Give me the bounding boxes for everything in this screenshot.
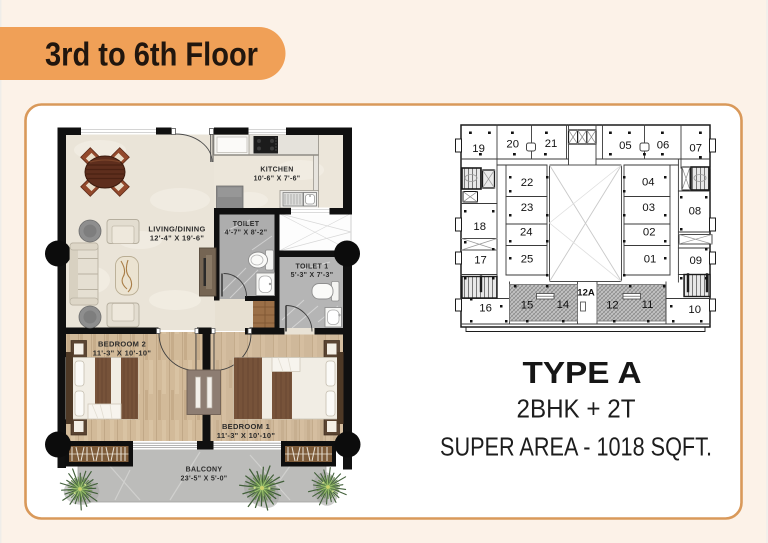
svg-text:2BHK + 2T: 2BHK + 2T [517,394,636,424]
svg-text:06: 06 [657,140,670,152]
svg-text:5'-3" X 7'-3": 5'-3" X 7'-3" [291,272,334,279]
svg-text:23'-5" X 5'-0": 23'-5" X 5'-0" [181,476,228,483]
svg-text:TOILET: TOILET [233,221,260,228]
svg-text:09: 09 [690,255,703,267]
svg-text:25: 25 [521,254,534,266]
svg-text:10: 10 [688,304,701,316]
svg-text:12A: 12A [577,288,595,299]
svg-text:20: 20 [506,139,519,151]
svg-text:4'-7" X 8'-2": 4'-7" X 8'-2" [225,230,268,237]
svg-text:TYPE A: TYPE A [523,355,642,390]
svg-text:10'-6" X 7'-6": 10'-6" X 7'-6" [254,176,301,183]
svg-text:11: 11 [642,299,654,311]
svg-text:BEDROOM 1: BEDROOM 1 [222,422,270,431]
svg-text:22: 22 [521,177,534,189]
svg-text:TOILET 1: TOILET 1 [296,264,329,271]
svg-text:11'-3" X 10'-10": 11'-3" X 10'-10" [217,431,276,440]
svg-text:02: 02 [643,227,656,239]
svg-text:19: 19 [472,143,485,155]
svg-text:01: 01 [644,254,657,266]
svg-text:23: 23 [521,202,534,214]
svg-text:21: 21 [545,138,558,150]
svg-text:11'-3" X 10'-10": 11'-3" X 10'-10" [93,349,152,358]
svg-text:16: 16 [479,303,492,315]
svg-text:04: 04 [642,177,655,189]
svg-text:03: 03 [642,202,655,214]
svg-text:BEDROOM 2: BEDROOM 2 [98,340,146,349]
svg-text:12'-4" X 19'-6": 12'-4" X 19'-6" [150,234,205,243]
svg-text:07: 07 [689,143,702,155]
svg-text:LIVING/DINING: LIVING/DINING [148,225,205,234]
svg-text:SUPER AREA - 1018 SQFT.: SUPER AREA - 1018 SQFT. [440,432,712,462]
svg-text:08: 08 [689,206,702,218]
svg-text:14: 14 [557,299,570,311]
svg-text:KITCHEN: KITCHEN [260,167,293,174]
svg-text:3rd to 6th Floor: 3rd to 6th Floor [45,36,258,73]
svg-text:BALCONY: BALCONY [186,467,223,474]
svg-text:05: 05 [619,140,632,152]
svg-text:15: 15 [521,300,534,312]
svg-text:18: 18 [473,221,486,233]
svg-text:12: 12 [606,300,619,312]
svg-text:24: 24 [520,227,533,239]
svg-text:17: 17 [474,255,487,267]
